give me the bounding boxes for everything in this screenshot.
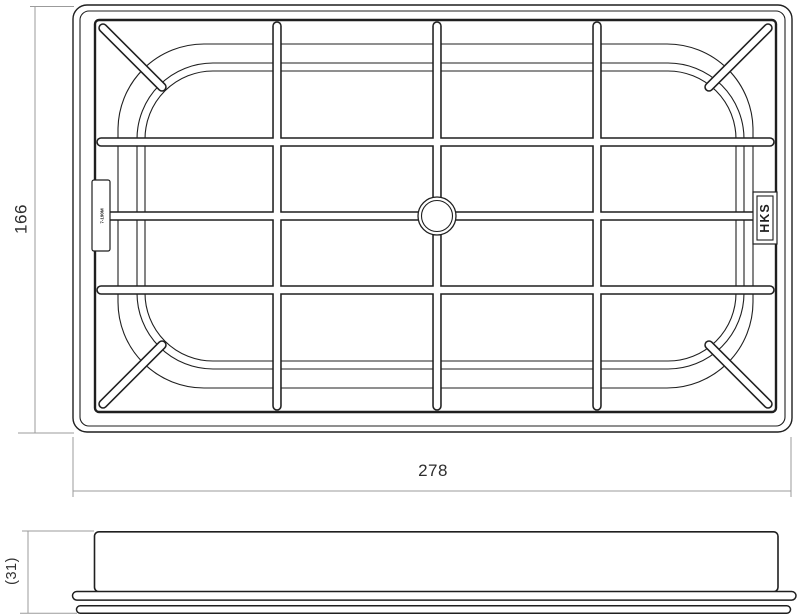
dimension-height-166: 166 <box>11 7 74 434</box>
corner-brace-core <box>103 28 162 87</box>
part-number-tab: 7-190M <box>92 180 110 251</box>
drawing-sheet: 7-190M HKS 166 278 (31) <box>0 0 800 614</box>
dimension-thickness-31: (31) <box>4 531 94 613</box>
side-view-flange-upper <box>73 592 797 601</box>
corner-brace-core <box>709 345 768 404</box>
hks-logo-text: HKS <box>758 203 772 232</box>
center-hole-outer-circle <box>418 197 456 235</box>
side-view-flange-lower <box>77 606 791 613</box>
dimension-width-label: 278 <box>418 461 448 480</box>
dimension-thickness-label: (31) <box>4 557 20 585</box>
side-view-body <box>95 532 779 592</box>
part-number-tab-label: 7-190M <box>100 208 105 224</box>
dimension-width-278: 278 <box>73 437 791 497</box>
technical-drawing-canvas: 7-190M HKS 166 278 (31) <box>0 0 800 614</box>
corner-brace-core <box>103 345 162 404</box>
side-view <box>73 532 797 613</box>
center-hole <box>418 197 456 235</box>
corner-brace-core <box>709 28 768 87</box>
top-view: 7-190M HKS <box>73 5 792 432</box>
dimension-height-label: 166 <box>11 204 30 234</box>
hks-logo-badge: HKS <box>753 192 777 244</box>
